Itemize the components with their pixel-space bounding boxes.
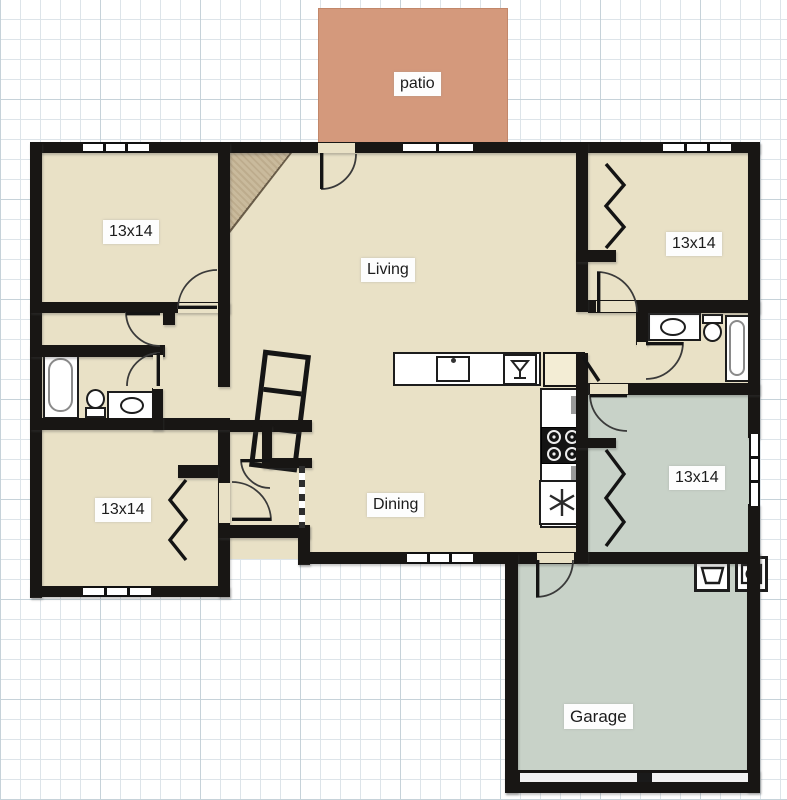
wall	[636, 313, 648, 345]
shelf-divider	[263, 387, 301, 397]
wall	[30, 418, 230, 430]
bifold-closet-doors	[168, 478, 190, 560]
bedroom-bottom-left-label: 13x14	[95, 498, 151, 522]
wall	[30, 142, 42, 598]
bathtub-basin	[729, 320, 745, 376]
window	[83, 142, 149, 153]
wall	[268, 458, 312, 468]
garage-door-divider	[637, 773, 652, 782]
cased-opening	[299, 466, 305, 528]
window	[407, 552, 473, 564]
window-mullion	[751, 456, 758, 459]
window-mullion	[427, 554, 430, 562]
bifold-closet-doors	[604, 448, 628, 548]
door-opening	[219, 483, 230, 523]
pantry-door-swing	[581, 355, 601, 383]
window-mullion	[103, 144, 106, 151]
bedroom-top-right-label: 13x14	[666, 232, 722, 256]
wall	[178, 465, 218, 478]
garage-entry-door-swing	[536, 560, 573, 597]
wall	[576, 250, 616, 262]
bathroom-door-swing	[646, 342, 683, 379]
toilet-icon	[703, 322, 722, 342]
window-mullion	[449, 554, 452, 562]
entry-door-swing	[320, 153, 356, 189]
bedroom-door-swing	[590, 394, 627, 431]
bedroom-top-left-label: 13x14	[103, 220, 159, 244]
window-mullion	[436, 144, 439, 151]
door-opening	[318, 143, 355, 153]
patio-label: patio	[394, 72, 441, 96]
garage-door	[520, 773, 748, 782]
wall	[163, 313, 175, 325]
wall	[505, 553, 518, 793]
sink-icon	[660, 318, 686, 336]
window	[663, 142, 731, 153]
floor-plan: patio 13x14 Living 13x14 13x14 Dining 13…	[0, 0, 787, 800]
hall-closet-door-swing	[241, 459, 270, 488]
window	[749, 434, 760, 506]
faucet-icon	[451, 358, 456, 363]
dining-label: Dining	[367, 493, 424, 517]
toilet-tank	[85, 407, 106, 418]
living-label: Living	[361, 258, 415, 282]
window-mullion	[125, 144, 128, 151]
wall	[152, 388, 163, 430]
bathtub-basin	[48, 358, 73, 412]
window-mullion	[104, 588, 107, 595]
window	[83, 586, 151, 597]
wall	[218, 525, 310, 538]
wine-glass-icon	[503, 354, 537, 385]
sink-icon	[120, 397, 144, 414]
closet-door-swing	[126, 312, 160, 346]
door-opening	[590, 384, 628, 394]
wall	[576, 142, 588, 312]
wall	[218, 142, 230, 313]
wall	[576, 353, 588, 563]
bathroom-door-swing	[127, 353, 160, 386]
wall	[747, 553, 760, 792]
bedroom-right-label: 13x14	[669, 466, 725, 490]
garage-label: Garage	[564, 704, 633, 729]
wall	[298, 552, 760, 564]
window-mullion	[127, 588, 130, 595]
bedroom-door-swing	[597, 272, 637, 312]
wall	[576, 438, 616, 448]
window-mullion	[751, 480, 758, 483]
bedroom-door-swing	[178, 270, 217, 309]
wall	[218, 313, 230, 387]
bifold-closet-doors	[604, 162, 628, 250]
toilet-icon	[86, 389, 105, 409]
window-mullion	[707, 144, 710, 151]
window	[403, 142, 473, 153]
window-mullion	[684, 144, 687, 151]
